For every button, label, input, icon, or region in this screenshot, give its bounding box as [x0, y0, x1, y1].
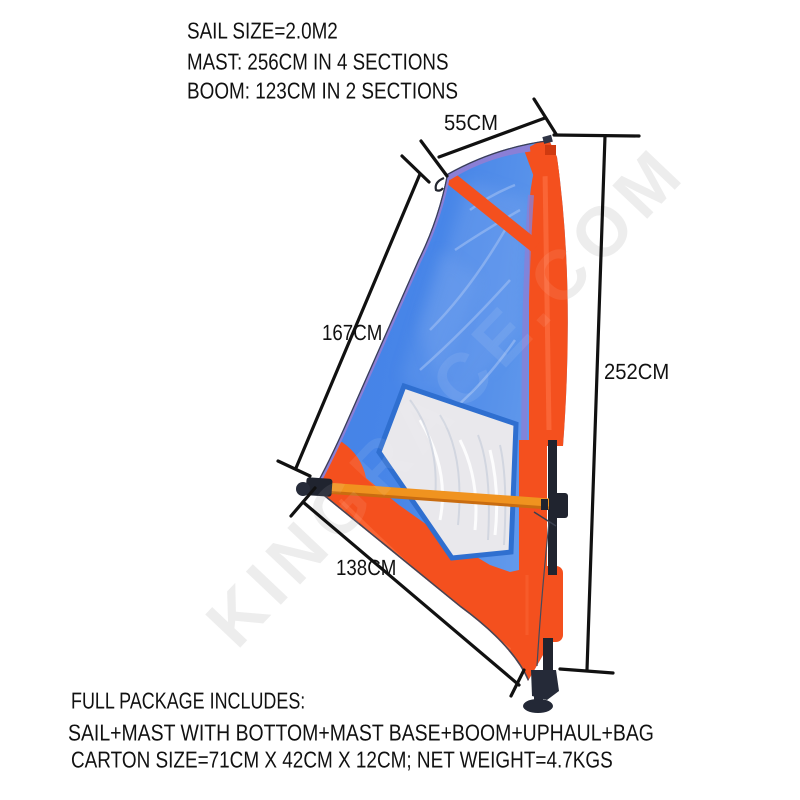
- svg-text:167CM: 167CM: [322, 320, 382, 345]
- svg-text:MAST: 256CM IN 4 SECTIONS: MAST: 256CM IN 4 SECTIONS: [187, 49, 448, 75]
- svg-text:CARTON SIZE=71CM X 42CM X 12CM: CARTON SIZE=71CM X 42CM X 12CM; NET WEIG…: [71, 747, 613, 773]
- svg-text:55CM: 55CM: [444, 110, 498, 135]
- svg-text:252CM: 252CM: [604, 359, 669, 384]
- svg-text:FULL PACKAGE INCLUDES:: FULL PACKAGE INCLUDES:: [71, 688, 305, 714]
- svg-text:SAIL SIZE=2.0M2: SAIL SIZE=2.0M2: [187, 18, 338, 44]
- svg-text:BOOM: 123CM IN 2 SECTIONS: BOOM: 123CM IN 2 SECTIONS: [187, 78, 458, 104]
- svg-text:138CM: 138CM: [336, 555, 396, 580]
- svg-text:SAIL+MAST WITH BOTTOM+MAST BAS: SAIL+MAST WITH BOTTOM+MAST BASE+BOOM+UPH…: [68, 720, 654, 746]
